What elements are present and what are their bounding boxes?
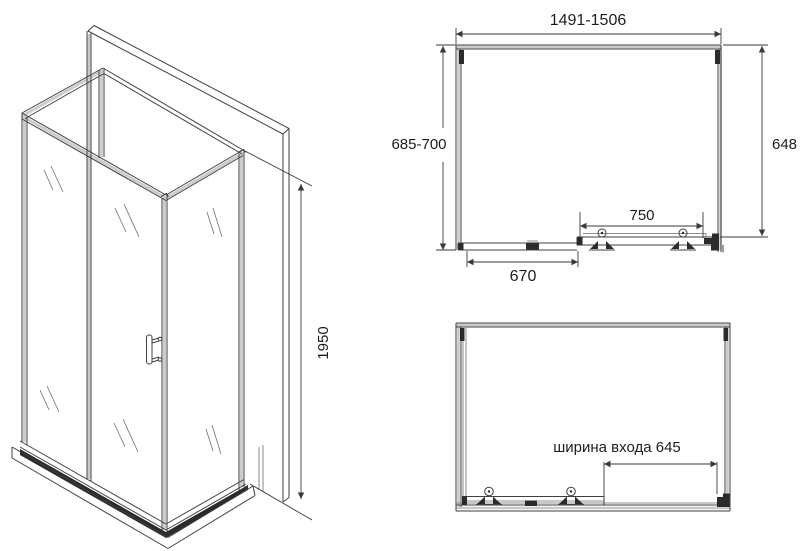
plan-wall-bands [456,47,721,250]
front-top-rail-band [22,116,166,198]
front-wall-bands [456,325,730,509]
glass-hatch-marks [40,166,222,454]
front-open-view: ширина входа 645 [456,323,730,511]
drawing-canvas: 1950 [0,0,803,551]
plan-roller [670,229,696,250]
plan-view: 1491-1506 685-700 648 750 670 [391,12,797,285]
plan-depth-dimension: 685-700 [391,45,456,250]
front-right-wall-profile [724,328,729,341]
front-roller [558,487,584,504]
dim-fixed-panel-label: 670 [510,268,537,285]
front-corner-bracket [717,494,730,508]
plan-fixed-panel [458,241,577,250]
height-dimension: 1950 [243,150,332,520]
dim-entrance-width-label: ширина входа 645 [553,439,681,456]
plan-walls [456,45,723,253]
isometric-view: 1950 [12,26,332,549]
plan-right-wall-profile [715,50,720,64]
panel-clip [526,243,539,250]
front-frame [456,323,730,511]
plan-width-dimension: 1491-1506 [456,12,721,44]
right-top-rail-band [166,153,243,198]
base-tray [12,441,255,549]
plan-left-wall-profile [459,50,464,64]
plan-fixed-dimension: 670 [467,251,578,285]
dim-door-width-label: 750 [629,207,654,224]
dim-plan-width-label: 1491-1506 [550,12,627,29]
entrance-dimension: ширина входа 645 [553,439,717,497]
dim-plan-depth-label: 685-700 [391,136,446,153]
panel-clip [525,501,537,507]
plan-glass-dimension: 648 [720,45,797,237]
front-roller [476,487,502,504]
shower-enclosure-technical-drawing: 1950 [0,0,803,551]
door-handle [147,335,162,364]
dim-glass-depth-label: 648 [772,136,797,153]
dim-height-label: 1950 [315,326,332,359]
back-wall-panel [88,26,289,503]
front-left-wall-profile [460,328,465,341]
plan-roller [589,229,615,250]
